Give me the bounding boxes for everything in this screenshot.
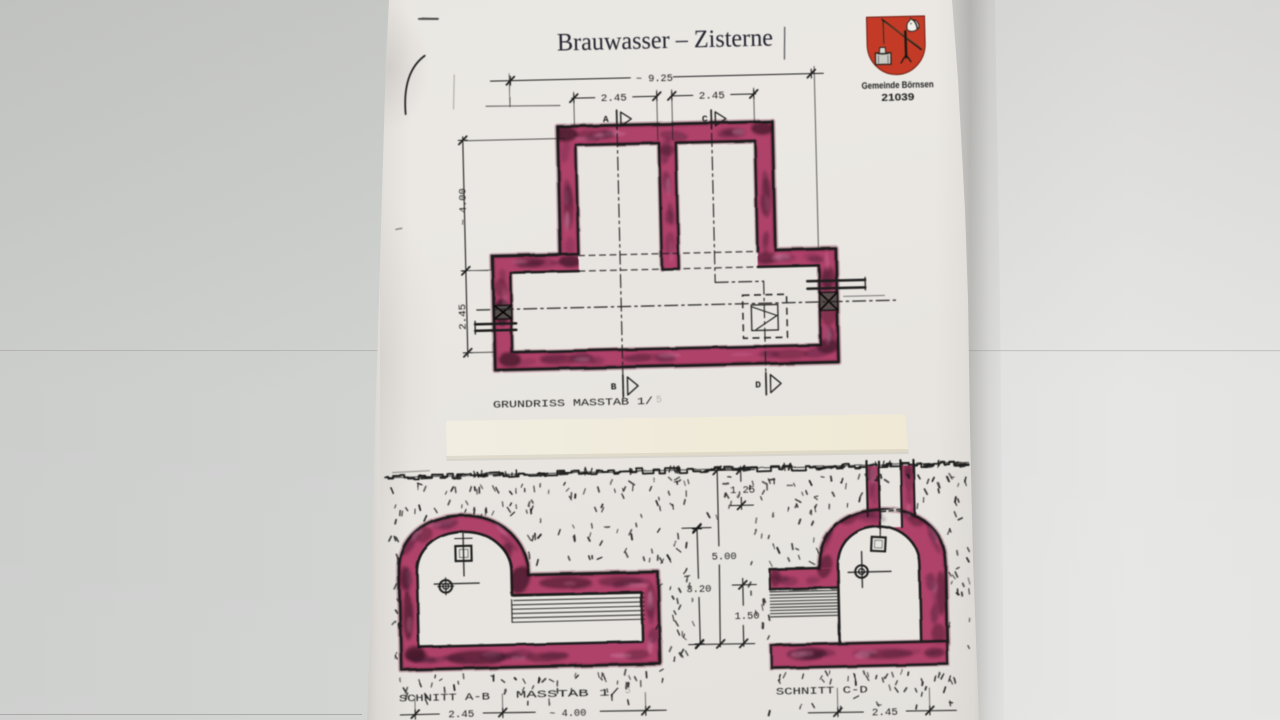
svg-text:MASSTAB 1/: MASSTAB 1/ [516, 687, 620, 701]
svg-text:B: B [611, 381, 617, 392]
svg-text:21039: 21039 [881, 92, 915, 104]
svg-text:SCHNITT C-D: SCHNITT C-D [776, 684, 868, 698]
svg-text:5.00: 5.00 [712, 551, 737, 564]
svg-text:5: 5 [656, 395, 662, 406]
svg-text:3.20: 3.20 [686, 584, 711, 597]
svg-text:1.50: 1.50 [734, 610, 759, 623]
svg-text:5: 5 [625, 686, 631, 697]
svg-text:2.45: 2.45 [601, 92, 627, 105]
svg-text:2.45: 2.45 [699, 90, 725, 103]
svg-text:C: C [702, 114, 708, 125]
svg-text:Gemeinde Börnsen: Gemeinde Börnsen [861, 79, 933, 92]
svg-text:~ 4.00: ~ 4.00 [457, 188, 470, 225]
svg-text:D: D [755, 379, 761, 390]
svg-text:2.45: 2.45 [448, 709, 474, 720]
svg-text:2.45: 2.45 [872, 707, 898, 720]
svg-text:A: A [603, 114, 609, 125]
svg-text:~ 4.00: ~ 4.00 [549, 708, 586, 720]
svg-text:SCHNITT A-B: SCHNITT A-B [399, 691, 490, 705]
svg-text:1.25: 1.25 [730, 485, 755, 498]
svg-text:~ 9.25: ~ 9.25 [636, 73, 673, 86]
svg-text:2.45: 2.45 [457, 304, 470, 330]
svg-text:GRUNDRISS MASSTAB 1/: GRUNDRISS MASSTAB 1/ [493, 396, 653, 412]
svg-text:Brauwasser – Zisterne: Brauwasser – Zisterne [557, 22, 774, 56]
